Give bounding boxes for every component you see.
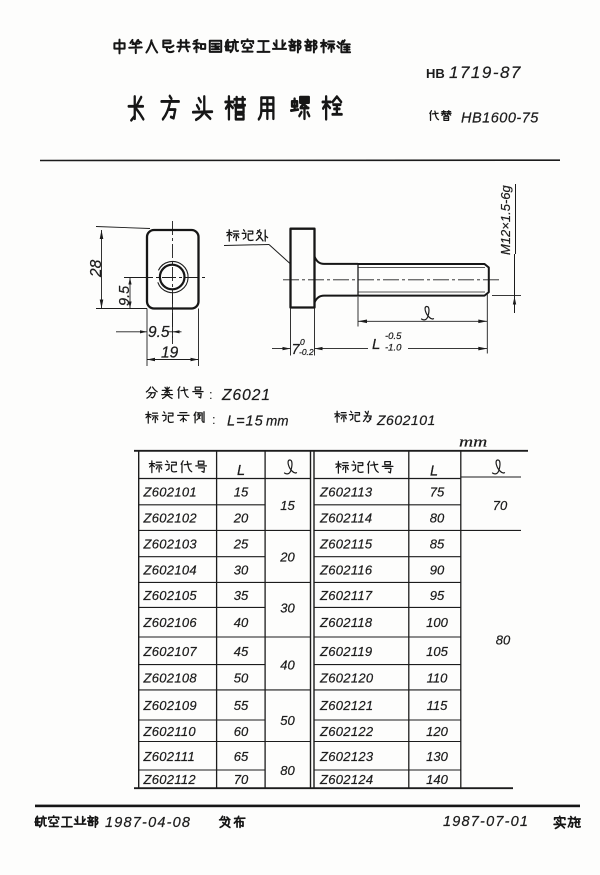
svg-text:90: 90 xyxy=(430,563,445,578)
svg-text:80: 80 xyxy=(496,633,511,648)
svg-text:105: 105 xyxy=(426,644,448,659)
svg-text:Z602106: Z602106 xyxy=(143,615,198,630)
svg-text:M12×1.5-6g: M12×1.5-6g xyxy=(498,184,513,255)
svg-text:95: 95 xyxy=(430,588,445,603)
svg-text:120: 120 xyxy=(426,724,448,739)
svg-text:Z602101: Z602101 xyxy=(143,485,197,500)
svg-text:140: 140 xyxy=(426,772,448,787)
svg-text:15: 15 xyxy=(280,498,295,513)
svg-text:Z602117: Z602117 xyxy=(319,588,373,603)
svg-text:70: 70 xyxy=(493,498,508,513)
svg-text:110: 110 xyxy=(427,670,448,685)
svg-text::: : xyxy=(209,387,213,402)
svg-text:Z602101: Z602101 xyxy=(376,412,436,428)
svg-text:15: 15 xyxy=(234,485,249,500)
svg-text:30: 30 xyxy=(280,600,295,615)
svg-text:Z602118: Z602118 xyxy=(319,615,373,630)
svg-text:mm: mm xyxy=(266,414,289,429)
svg-text:Z602114: Z602114 xyxy=(319,511,372,526)
svg-text:1987-07-01: 1987-07-01 xyxy=(443,814,529,830)
svg-text:L=15: L=15 xyxy=(227,414,264,430)
svg-text:Z602104: Z602104 xyxy=(143,563,197,578)
svg-text:100: 100 xyxy=(426,615,448,630)
svg-text:Z602112: Z602112 xyxy=(143,772,197,787)
svg-text:Z602122: Z602122 xyxy=(319,724,374,739)
svg-text:L: L xyxy=(430,464,438,480)
svg-text:Z602107: Z602107 xyxy=(143,644,198,659)
svg-text:1987-04-08: 1987-04-08 xyxy=(105,815,191,831)
svg-text:Z602121: Z602121 xyxy=(319,698,373,713)
svg-text:75: 75 xyxy=(430,485,445,500)
svg-text:Z602105: Z602105 xyxy=(143,588,198,603)
svg-text:HB1600-75: HB1600-75 xyxy=(461,111,539,127)
svg-text:Z602113: Z602113 xyxy=(319,485,373,500)
svg-text:0: 0 xyxy=(300,337,305,347)
svg-text:20: 20 xyxy=(279,550,295,565)
svg-text:Z602119: Z602119 xyxy=(319,644,372,659)
svg-text:85: 85 xyxy=(430,537,445,552)
svg-text:Z602110: Z602110 xyxy=(143,724,197,739)
svg-text:80: 80 xyxy=(280,763,295,778)
svg-text:9.5: 9.5 xyxy=(148,324,170,341)
svg-text:25: 25 xyxy=(233,537,249,552)
svg-text:70: 70 xyxy=(234,772,249,787)
svg-text:Z602120: Z602120 xyxy=(319,670,374,685)
svg-text:40: 40 xyxy=(280,658,295,673)
svg-text:35: 35 xyxy=(234,588,249,603)
svg-text:Z602103: Z602103 xyxy=(143,537,198,552)
svg-text:9.5: 9.5 xyxy=(117,285,133,306)
svg-text:130: 130 xyxy=(426,749,448,764)
svg-text:mm: mm xyxy=(459,434,487,450)
svg-text:65: 65 xyxy=(234,749,249,764)
svg-text:Z602115: Z602115 xyxy=(319,537,373,552)
svg-text:55: 55 xyxy=(234,698,249,713)
svg-text:40: 40 xyxy=(234,615,249,630)
svg-text:Z602108: Z602108 xyxy=(143,670,198,685)
svg-text:-0.2: -0.2 xyxy=(299,347,314,357)
svg-text:Z6021: Z6021 xyxy=(221,387,271,404)
svg-text:L: L xyxy=(237,463,245,479)
svg-text:Z602124: Z602124 xyxy=(319,772,373,787)
svg-text:1719-87: 1719-87 xyxy=(449,63,522,82)
svg-text:-0.5: -0.5 xyxy=(385,331,402,342)
svg-text:60: 60 xyxy=(234,724,249,739)
svg-text:45: 45 xyxy=(234,644,249,659)
svg-text:80: 80 xyxy=(430,511,445,526)
svg-text::: : xyxy=(212,412,216,427)
svg-text:-1.0: -1.0 xyxy=(385,343,402,354)
svg-text:Z602102: Z602102 xyxy=(143,511,198,526)
svg-text:50: 50 xyxy=(234,670,249,685)
svg-text:20: 20 xyxy=(233,511,249,526)
svg-text:Z602111: Z602111 xyxy=(143,749,196,764)
svg-text:HB: HB xyxy=(426,66,445,81)
svg-text:115: 115 xyxy=(427,698,448,713)
svg-text:L: L xyxy=(372,336,380,353)
svg-text:30: 30 xyxy=(234,563,249,578)
svg-text:Z602116: Z602116 xyxy=(319,563,373,578)
svg-text:50: 50 xyxy=(280,713,295,728)
svg-text:Z602123: Z602123 xyxy=(319,749,374,764)
svg-text:19: 19 xyxy=(161,345,179,362)
svg-text:Z602109: Z602109 xyxy=(143,698,197,713)
svg-text:28: 28 xyxy=(88,259,105,278)
